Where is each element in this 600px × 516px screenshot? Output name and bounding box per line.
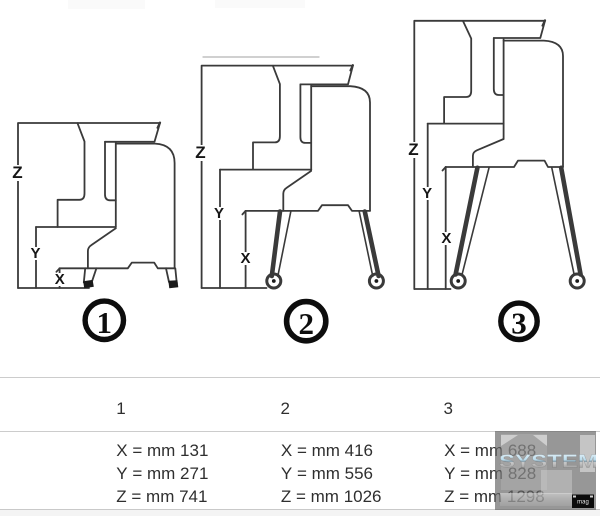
svg-text:2: 2 [298, 306, 314, 341]
svg-text:SYSTEM: SYSTEM [499, 451, 596, 472]
svg-text:mag: mag [577, 500, 589, 506]
svg-text:3: 3 [511, 306, 527, 341]
svg-text:1: 1 [97, 305, 113, 340]
